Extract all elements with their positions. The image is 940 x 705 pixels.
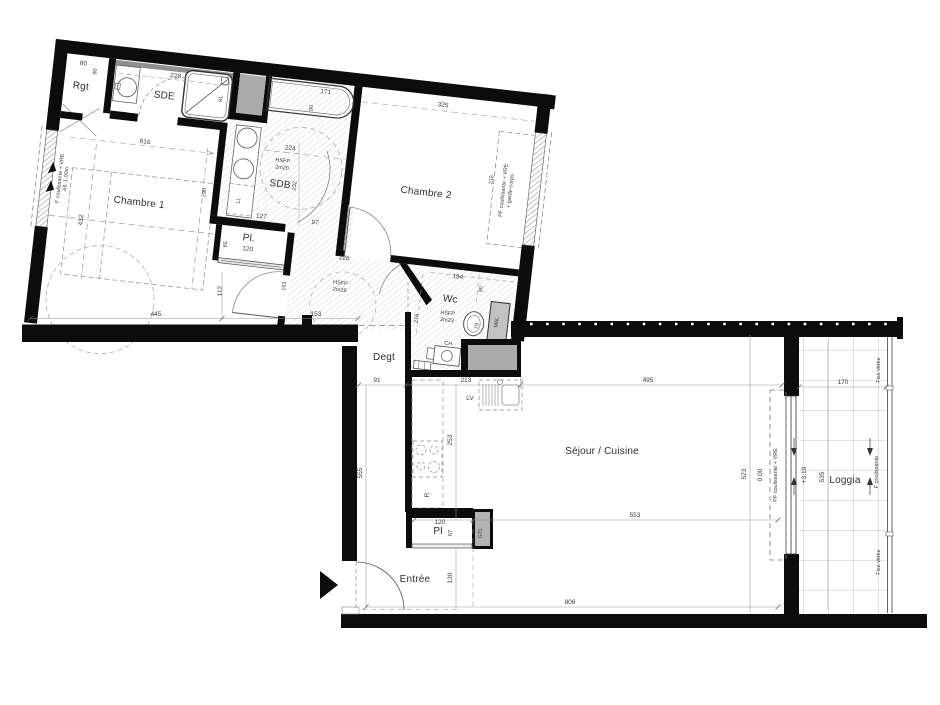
svg-text:Séjour / Cuisine: Séjour / Cuisine	[565, 446, 639, 457]
svg-text:127: 127	[256, 213, 268, 221]
svg-text:325: 325	[437, 101, 449, 109]
svg-text:553: 553	[630, 512, 641, 519]
svg-text:216: 216	[413, 313, 420, 323]
svg-text:LV: LV	[466, 395, 474, 402]
svg-text:213: 213	[461, 377, 472, 384]
svg-text:194: 194	[452, 273, 464, 281]
svg-text:Rgt: Rgt	[72, 80, 89, 93]
svg-text:171: 171	[320, 88, 332, 96]
svg-text:232: 232	[292, 181, 299, 191]
svg-text:79: 79	[474, 323, 481, 330]
svg-text:523: 523	[741, 468, 748, 479]
svg-text:Loggia: Loggia	[829, 475, 860, 486]
svg-text:170: 170	[838, 379, 849, 386]
svg-text:PF coulissante + VRE: PF coulissante + VRE	[773, 448, 779, 502]
svg-text:226: 226	[338, 254, 350, 262]
svg-text:555: 555	[357, 467, 364, 478]
svg-text:445: 445	[151, 311, 162, 318]
svg-text:+3.10: +3.10	[801, 466, 808, 483]
svg-text:67: 67	[448, 530, 454, 536]
svg-text:80: 80	[79, 60, 87, 68]
svg-text:228: 228	[170, 72, 182, 80]
svg-text:153: 153	[281, 281, 288, 291]
svg-text:Degt: Degt	[373, 352, 395, 363]
svg-text:120: 120	[435, 519, 446, 526]
svg-text:535: 535	[819, 471, 826, 482]
svg-text:MàL: MàL	[493, 317, 500, 328]
svg-text:290: 290	[201, 188, 208, 198]
svg-text:90: 90	[478, 286, 485, 293]
svg-text:GTL: GTL	[478, 528, 484, 539]
svg-text:495: 495	[643, 377, 654, 384]
svg-text:F coulissante: F coulissante	[874, 456, 880, 488]
svg-text:816: 816	[139, 138, 151, 146]
svg-text:0.00: 0.00	[757, 468, 764, 481]
svg-text:CH: CH	[444, 341, 453, 348]
svg-text:Wc: Wc	[442, 293, 458, 306]
svg-text:65: 65	[223, 241, 230, 248]
svg-text:153: 153	[311, 311, 322, 318]
svg-text:224: 224	[284, 144, 296, 152]
svg-text:Pl: Pl	[433, 526, 442, 537]
svg-text:Entrée: Entrée	[400, 574, 431, 585]
svg-text:97: 97	[311, 219, 319, 227]
svg-text:130: 130	[447, 572, 454, 583]
svg-text:120: 120	[242, 245, 254, 253]
svg-text:R: R	[424, 492, 431, 497]
svg-text:91: 91	[373, 377, 381, 384]
svg-text:215: 215	[488, 175, 495, 185]
svg-text:412: 412	[77, 214, 85, 226]
svg-text:90: 90	[92, 68, 99, 75]
svg-text:Fixe vitrée: Fixe vitrée	[876, 549, 882, 574]
svg-text:LL: LL	[236, 197, 243, 204]
svg-text:112: 112	[217, 285, 224, 296]
svg-text:Pl.: Pl.	[242, 232, 255, 244]
svg-text:Fixe vitrée: Fixe vitrée	[876, 357, 882, 382]
svg-text:91: 91	[218, 96, 225, 103]
svg-text:90: 90	[309, 105, 316, 112]
svg-text:806: 806	[565, 599, 576, 606]
svg-text:253: 253	[447, 434, 454, 445]
